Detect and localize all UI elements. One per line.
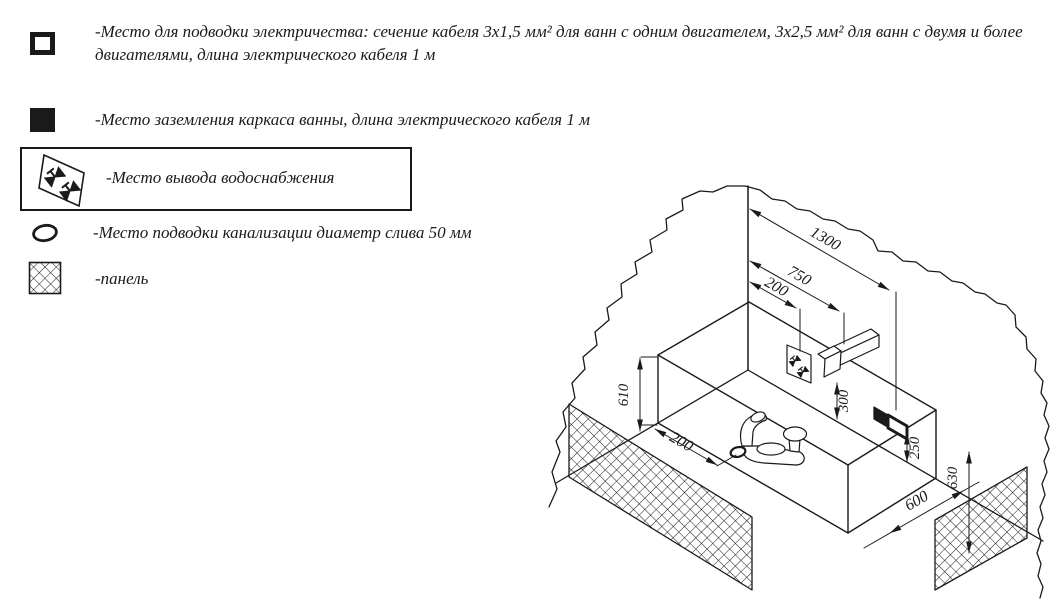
dim-250: 250 <box>907 436 923 459</box>
dim-600: 600 <box>902 488 931 515</box>
dim-200-bottom: 200 <box>667 429 696 456</box>
isometric-drawing: 1300 750 200 610 200 300 250 630 600 <box>0 0 1059 612</box>
dim-300: 300 <box>836 389 852 413</box>
spout-duct <box>818 329 879 377</box>
drain-oval-mark <box>730 446 747 459</box>
installation-scheme-page: -Место для подводки электричества: сечен… <box>0 0 1059 612</box>
dim-610: 610 <box>616 383 632 406</box>
electric-outlet-point <box>888 415 907 439</box>
water-supply-plate <box>787 345 811 383</box>
dim-1300: 1300 <box>807 224 843 255</box>
dim-630: 630 <box>945 466 961 489</box>
